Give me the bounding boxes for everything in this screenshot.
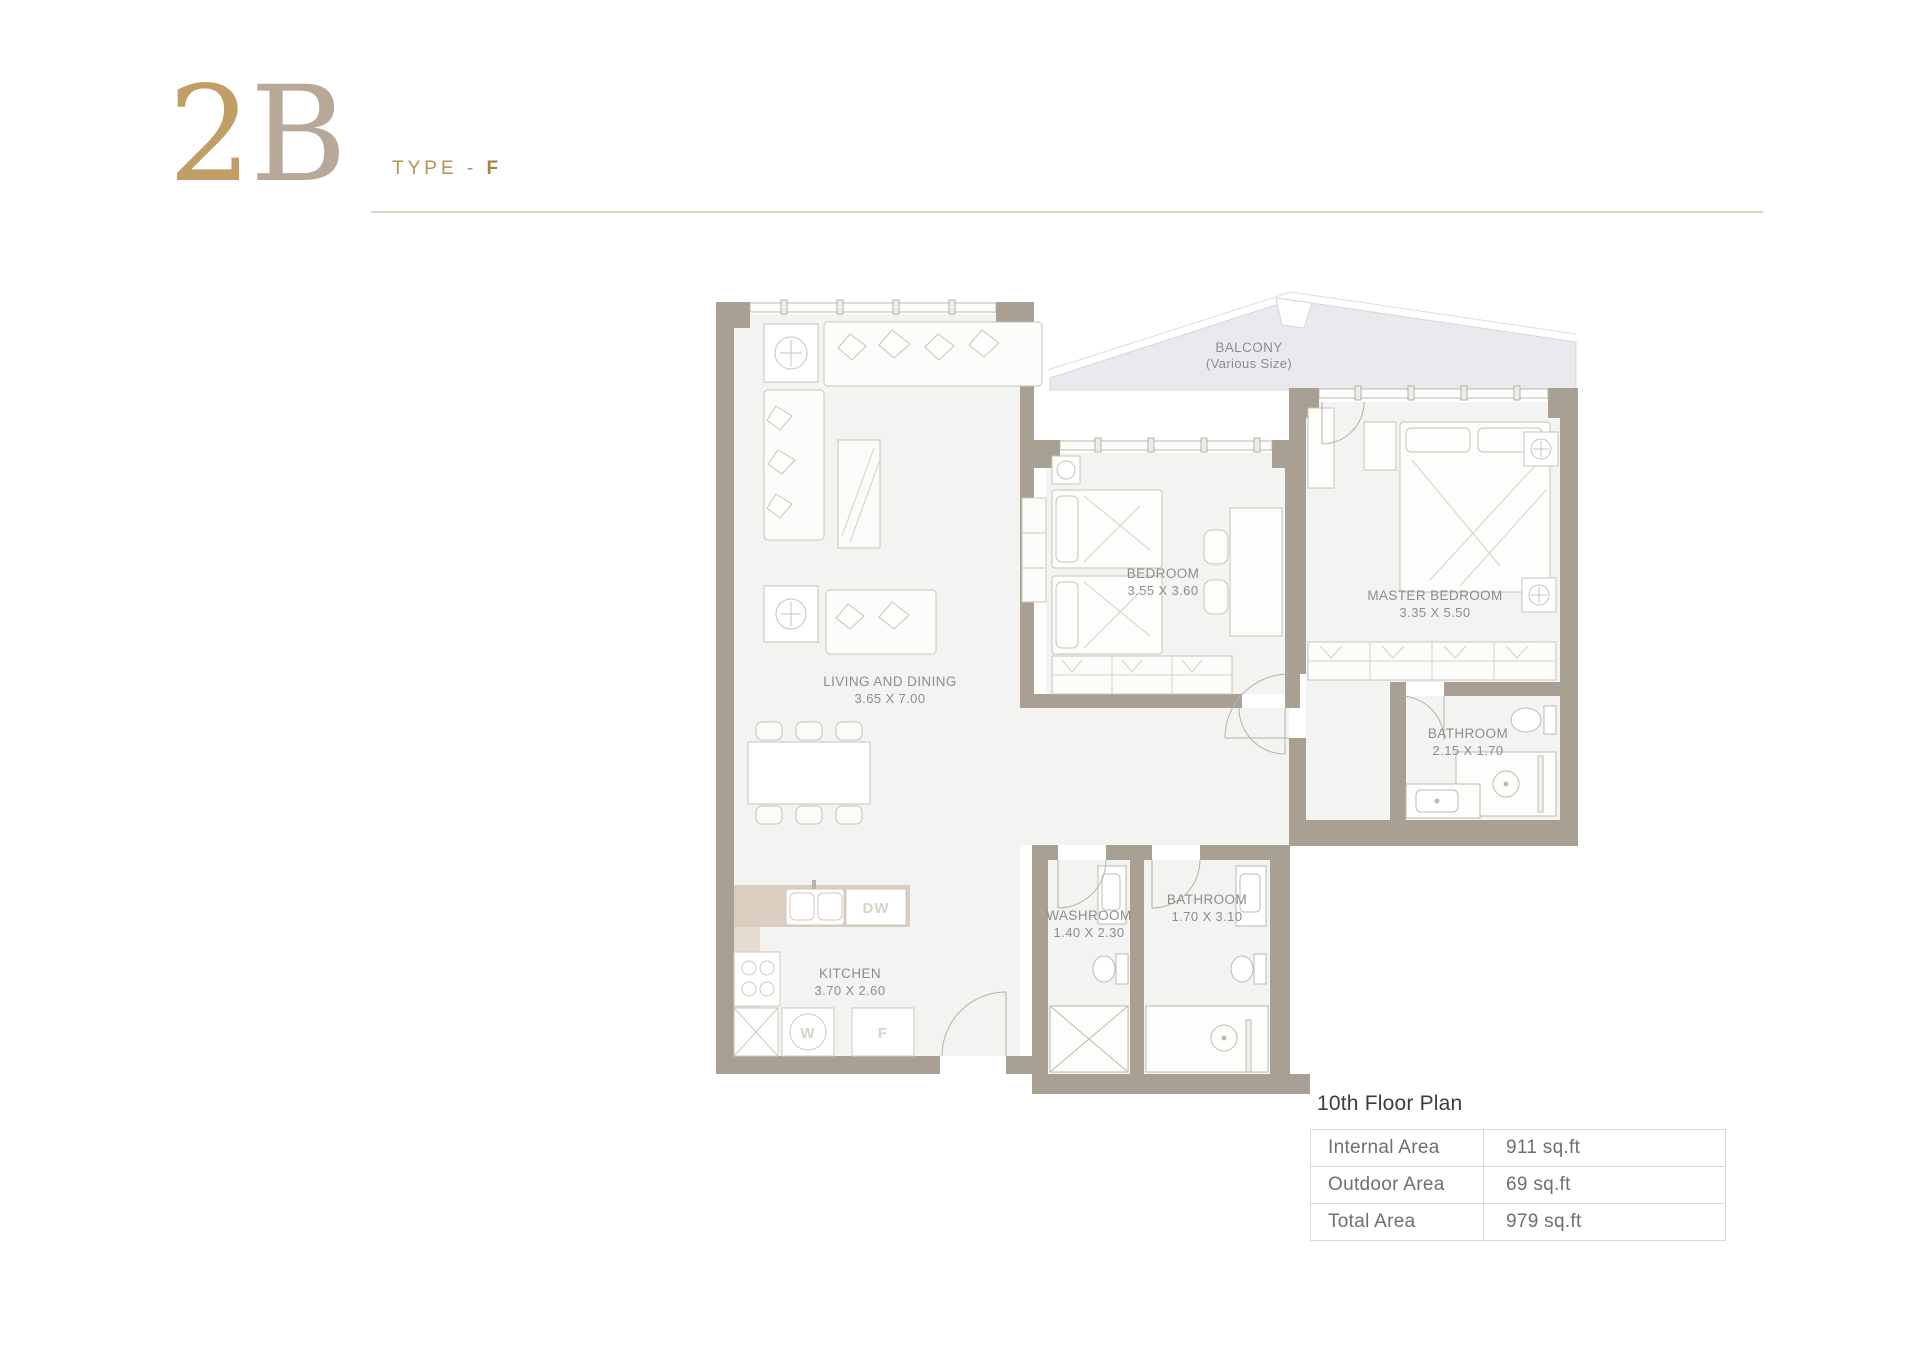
area-value: 69 sq.ft — [1484, 1167, 1726, 1204]
header-divider — [371, 211, 1763, 213]
unit-type-label: TYPE - F — [392, 158, 502, 180]
dining-table — [748, 742, 870, 804]
bedroom-label: BEDROOM — [1127, 566, 1200, 581]
master-bedroom-dims: 3.35 X 5.50 — [1400, 605, 1471, 620]
bathroom2-shower — [1146, 1006, 1268, 1072]
dining-set — [748, 722, 870, 824]
balcony-label: BALCONY — [1215, 340, 1282, 355]
kitchen-label: KITCHEN — [819, 966, 881, 981]
area-value: 979 sq.ft — [1484, 1204, 1726, 1241]
area-summary: 10th Floor Plan Internal Area 911 sq.ft … — [1310, 1092, 1726, 1241]
page-title-letter: B — [250, 58, 345, 212]
page-title-number: 2 — [168, 58, 250, 212]
wall-closet — [1022, 498, 1046, 602]
floor-plan-title: 10th Floor Plan — [1317, 1092, 1726, 1116]
master-bathroom-label: BATHROOM — [1428, 726, 1508, 741]
balcony-note: (Various Size) — [1206, 356, 1292, 371]
master-bedroom-label: MASTER BEDROOM — [1367, 588, 1502, 603]
area-label: Outdoor Area — [1311, 1167, 1484, 1204]
washroom-dims: 1.40 X 2.30 — [1054, 925, 1125, 940]
side-table-lamp-2 — [764, 586, 818, 642]
chaise — [764, 390, 824, 540]
table-row: Internal Area 911 sq.ft — [1311, 1130, 1726, 1167]
balcony: BALCONY (Various Size) — [1048, 292, 1576, 390]
bedroom-wardrobe — [1052, 656, 1232, 694]
side-table-plus-1 — [1524, 432, 1558, 466]
master-wardrobe — [1308, 642, 1556, 680]
washer-label: W — [800, 1025, 815, 1042]
toilet — [1511, 708, 1541, 732]
vanity-sink — [1406, 784, 1480, 818]
washroom-toilet — [1093, 956, 1115, 982]
master-bathroom-dims: 2.15 X 1.70 — [1433, 743, 1504, 758]
washroom-unit — [1050, 1006, 1128, 1072]
side-table-plus-2 — [1522, 578, 1556, 612]
washroom-toilet-tank — [1116, 954, 1128, 984]
master-dresser — [1308, 408, 1334, 488]
table-row: Total Area 979 sq.ft — [1311, 1204, 1726, 1241]
bathroom2-label: BATHROOM — [1167, 892, 1247, 907]
bathroom2-dims: 1.70 X 3.10 — [1172, 909, 1243, 924]
toilet-tank — [1544, 706, 1556, 734]
area-value: 911 sq.ft — [1484, 1130, 1726, 1167]
loveseat — [826, 590, 936, 654]
bathroom2-toilet-tank — [1254, 954, 1266, 984]
area-label: Internal Area — [1311, 1130, 1484, 1167]
bedroom-dims: 3.55 X 3.60 — [1128, 583, 1199, 598]
floor-plan: BALCONY (Various Size) — [700, 290, 1600, 1100]
side-table-lamp — [764, 324, 818, 382]
dishwasher-label: DW — [863, 900, 890, 917]
unit-type-value: F — [487, 158, 503, 179]
living-dining-label: LIVING AND DINING — [823, 674, 957, 689]
table-row: Outdoor Area 69 sq.ft — [1311, 1167, 1726, 1204]
kitchen-dims: 3.70 X 2.60 — [815, 983, 886, 998]
page-title: 2B — [168, 60, 345, 212]
area-label: Total Area — [1311, 1204, 1484, 1241]
area-table: Internal Area 911 sq.ft Outdoor Area 69 … — [1310, 1129, 1726, 1241]
stove — [734, 952, 780, 1006]
bed-single-1 — [1052, 490, 1162, 568]
living-dining-dims: 3.65 X 7.00 — [855, 691, 926, 706]
washroom-label: WASHROOM — [1046, 908, 1131, 923]
mirror — [838, 440, 880, 548]
fridge-label: F — [878, 1025, 888, 1042]
nightstand — [1364, 422, 1396, 470]
bathroom2-toilet — [1231, 956, 1253, 982]
sofa — [824, 322, 1042, 386]
page: { "header": { "title_first": "2", "title… — [0, 0, 1920, 1357]
